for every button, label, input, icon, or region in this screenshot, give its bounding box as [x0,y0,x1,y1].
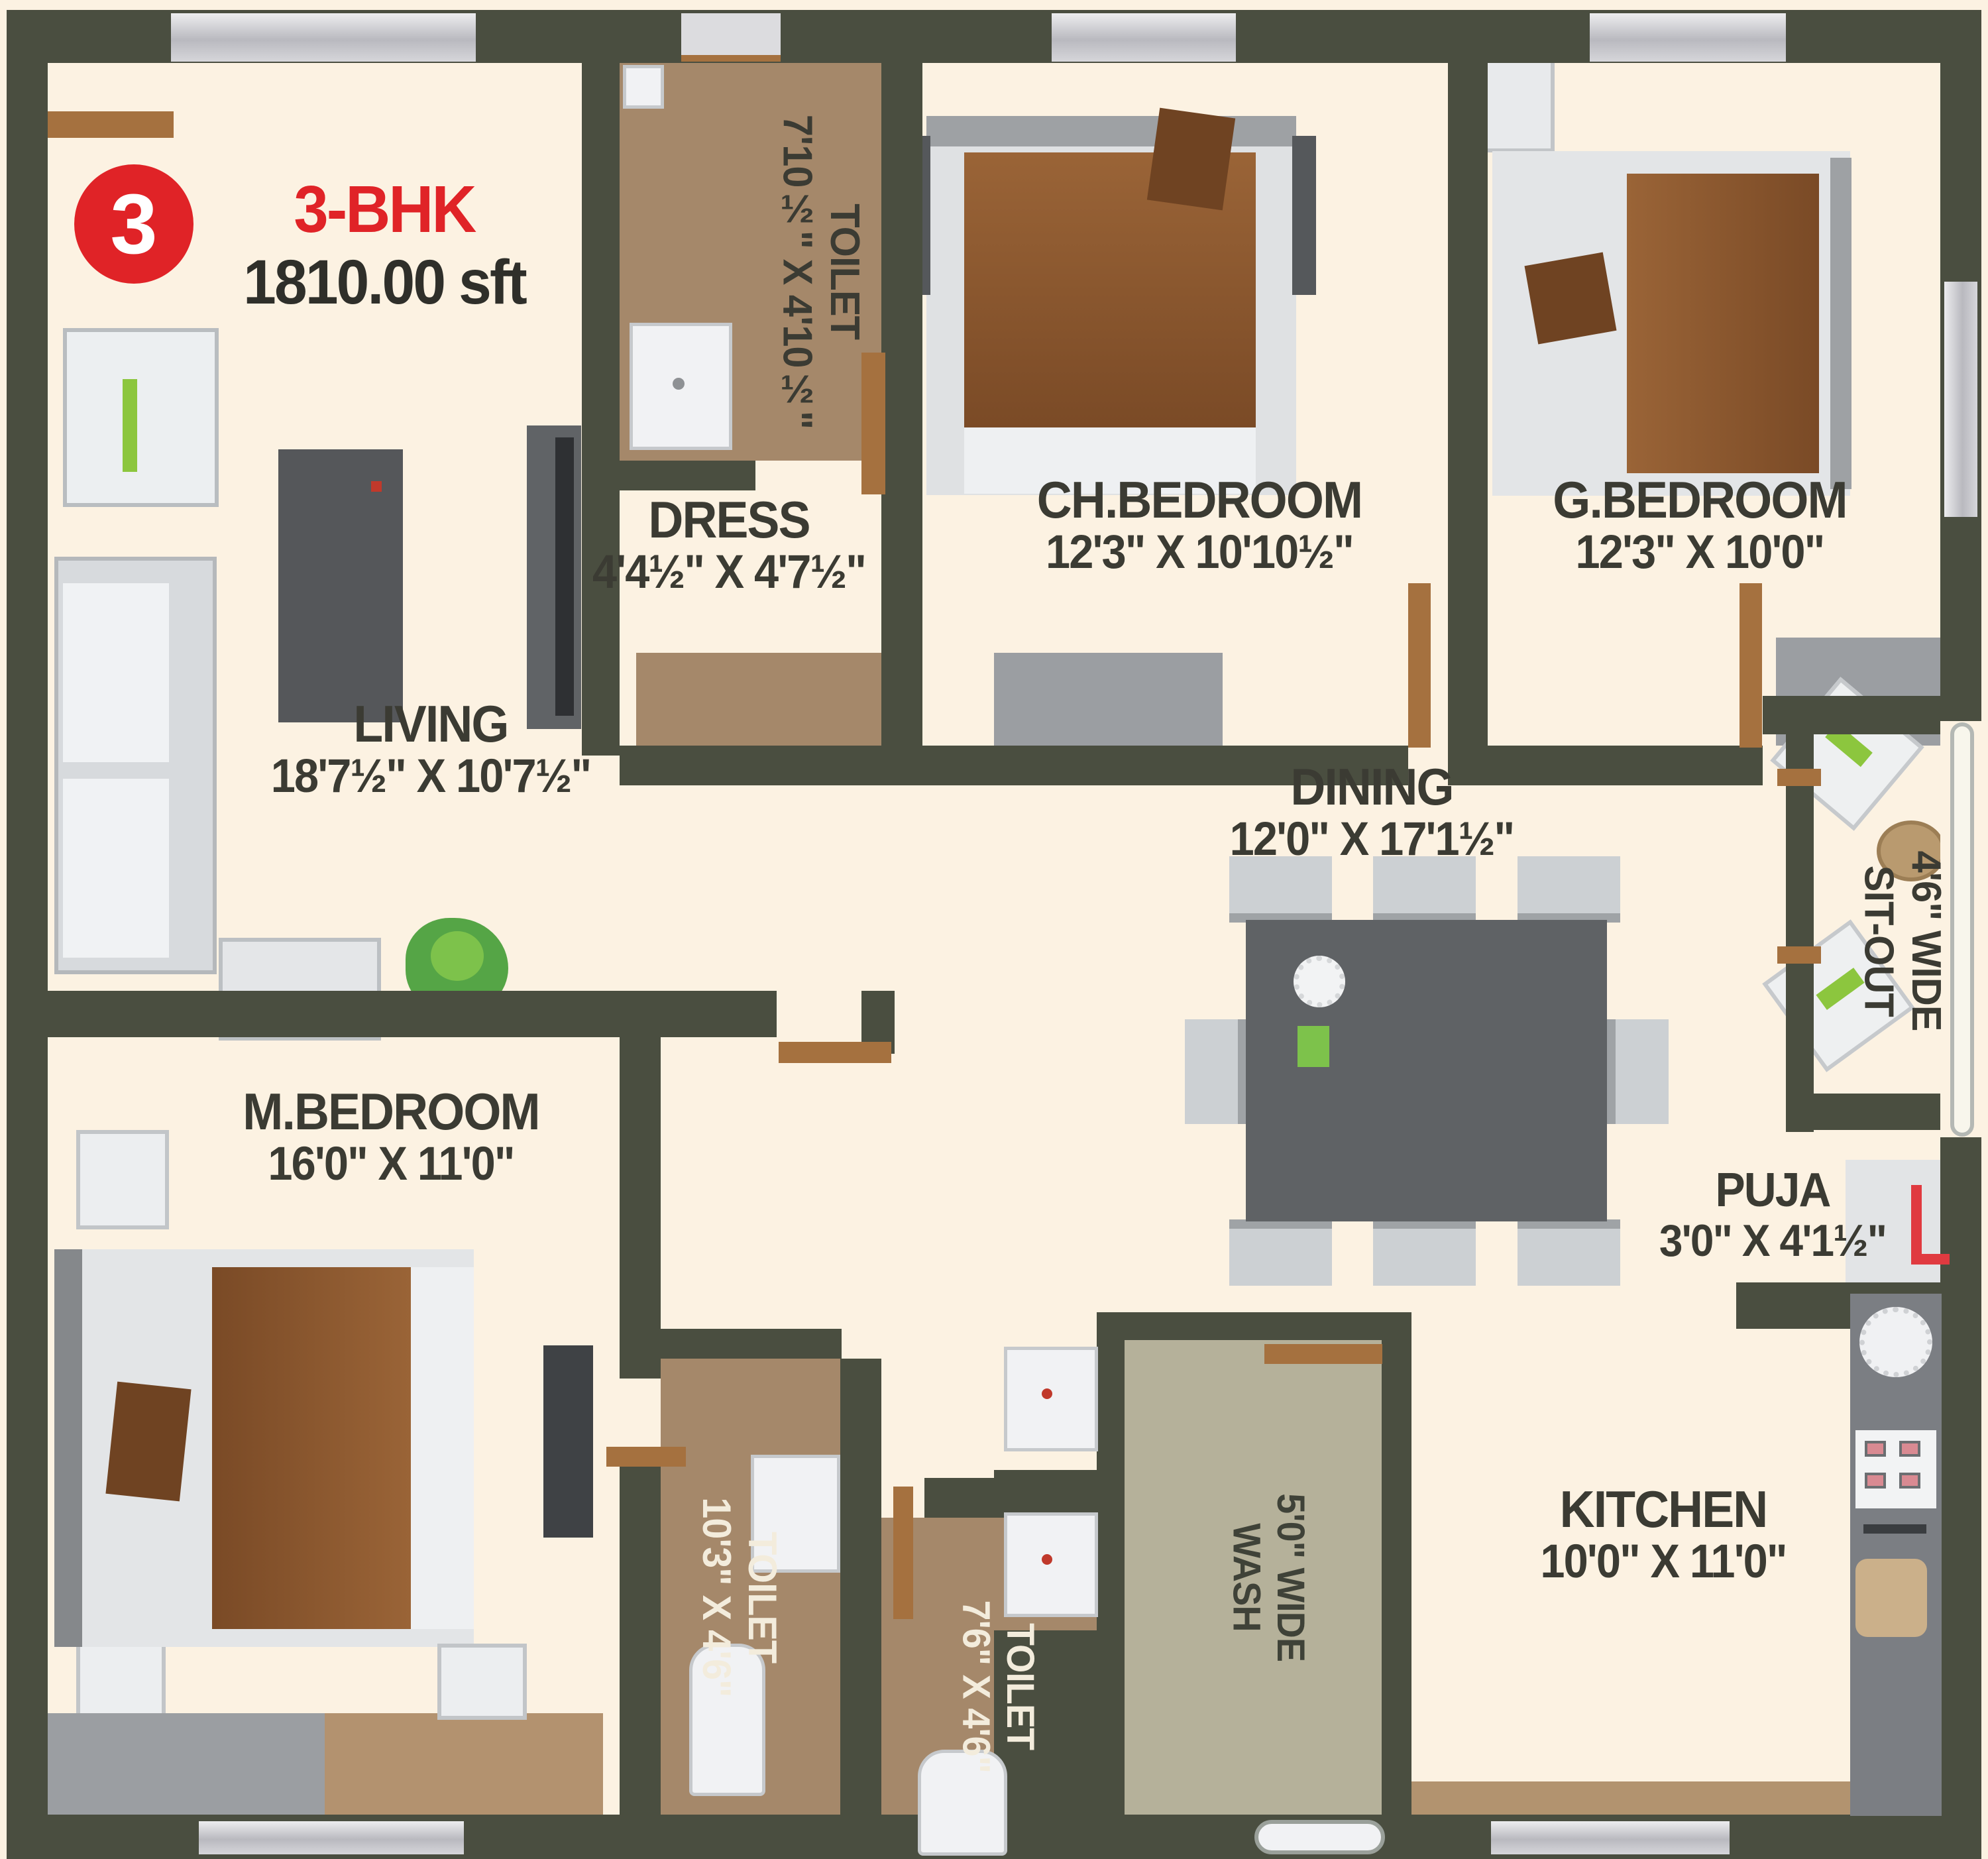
kitchen-name: KITCHEN [1445,1481,1881,1537]
ch-bed-headboard [926,116,1296,146]
wall [1097,1312,1125,1859]
toilet-top-name: TOILET [821,87,868,457]
wash-dims: 5'0" WIDE [1268,1412,1312,1742]
g-bed-blanket [1627,174,1819,473]
puja-dims: 3'0" X 4'1½" [1626,1217,1919,1265]
g-bed-pillow [1524,252,1616,344]
sitout-window-bar [1777,946,1821,964]
unit-area: 1810.00 sft [203,249,565,317]
kitchen-sink [1859,1307,1932,1377]
sitout-window-bar [1777,769,1821,786]
wall [1097,1312,1408,1340]
living-name: LIVING [200,696,661,752]
kitchen-label: KITCHEN 10'0" X 11'0" [1445,1481,1881,1588]
m-bed-sheet [411,1267,474,1629]
toilet-common-name: TOILET [997,1537,1042,1836]
dining-name: DINING [1141,759,1602,815]
kitchen-floor-strip [1411,1781,1859,1815]
dress-floor-strip [636,653,881,746]
sitout-label: 4'6" WIDE SIT-OUT [1830,763,1950,1119]
stove-burner [1899,1473,1920,1489]
kitchen-dims: 10'0" X 11'0" [1445,1537,1881,1588]
stove-burner [1865,1441,1886,1457]
wall [840,1359,881,1859]
stove-burner [1899,1441,1920,1457]
toilet-common-door [893,1487,913,1619]
plant-highlight [431,931,484,981]
unit-area-text: 1810.00 sft [203,249,565,317]
ch-bedroom-dims: 12'3" X 10'10½" [963,528,1436,579]
sitout-railing [1950,722,1974,1137]
wash-name: WASH [1224,1412,1268,1742]
unit-number-badge: 3 [74,164,193,284]
cabinet-knob [371,481,382,492]
dining-chair [1229,856,1332,923]
ch-bedroom-label: CH.BEDROOM 12'3" X 10'10½" [963,472,1436,579]
m-side-table [76,1130,169,1229]
unit-type-text: 3-BHK [229,174,540,245]
dress-name: DRESS [555,492,903,547]
window [171,13,476,62]
dining-chair [1518,856,1620,923]
dining-chair [1518,1219,1620,1286]
window [1491,1821,1730,1854]
wall-left [7,10,48,1859]
unit-type: 3-BHK [229,174,540,245]
dining-label: DINING 12'0" X 17'1½" [1141,759,1602,866]
table-mat [1298,1026,1329,1067]
washbasin [1004,1347,1098,1451]
m-bedroom-label: M.BEDROOM 16'0" X 11'0" [160,1084,622,1190]
toilet-top-basin-dot [673,378,685,390]
ch-bedroom-name: CH.BEDROOM [963,472,1436,528]
window [199,1821,464,1854]
dressing-stool [437,1644,527,1720]
ch-wardrobe [994,653,1223,746]
sofa-cushion [63,583,169,762]
unit-number: 3 [110,176,157,273]
dining-chair [1373,1219,1476,1286]
ch-side-table [1292,136,1316,295]
washbasin-tap [1042,1554,1052,1565]
window [1590,13,1786,62]
g-bedroom-dims: 12'3" X 10'0" [1472,528,1927,579]
dining-chair [1185,1019,1247,1124]
sitout-dims: 4'6" WIDE [1903,763,1950,1119]
floor-plan: 3 3-BHK 1810.00 sft LIVING 18'7½" X 10'7… [0,0,1988,1859]
m-bedroom-door [779,1042,891,1063]
wall [881,63,922,785]
wall [48,991,777,1037]
wall [1382,1312,1411,1859]
dining-chair [1373,856,1476,923]
dressing-table [325,1713,603,1816]
toilet-master-label: TOILET 10'3" X 4'6" [653,1419,785,1775]
washbasin-tap [1042,1388,1052,1399]
m-tv [543,1345,593,1538]
armchair [63,328,219,507]
toilet-top-dims: 7'10½" X 4'10½" [773,87,820,457]
g-bedroom-name: G.BEDROOM [1472,472,1927,528]
armchair-accent [123,379,137,472]
dress-dims: 4'4½" X 4'7½" [555,547,903,598]
wall [620,461,755,490]
toilet-common-dims: 7'6" X 4'6" [954,1537,998,1836]
sofa-cushion [63,779,169,958]
wash-sliding-door [1254,1820,1385,1854]
puja-name: PUJA [1626,1165,1919,1217]
living-dims: 18'7½" X 10'7½" [200,752,661,803]
g-cabinet [1476,58,1555,152]
m-bedroom-dims: 16'0" X 11'0" [160,1139,622,1190]
wall [582,63,620,756]
wall [994,1470,1097,1500]
g-bedroom-label: G.BEDROOM 12'3" X 10'0" [1472,472,1927,579]
toilet-master-dims: 10'3" X 4'6" [694,1419,740,1775]
m-wardrobe [46,1713,325,1815]
living-label: LIVING 18'7½" X 10'7½" [200,696,661,803]
wash-door-track [1264,1344,1382,1364]
window [1052,13,1236,62]
sitout-name: SIT-OUT [1855,763,1902,1119]
ch-bedroom-door [1408,583,1431,748]
table-flower [1294,956,1345,1007]
dining-chair [1606,1019,1669,1124]
ch-bed-pillow [1147,108,1235,211]
m-bed-blanket [212,1267,411,1629]
toilet-master-name: TOILET [740,1419,785,1775]
g-bedroom-door [1739,583,1762,748]
wall [1448,56,1488,785]
wall [1786,696,1814,1132]
toilet-top-shelf [623,65,664,109]
wall [620,1037,661,1379]
m-bed-headboard [54,1249,82,1647]
dress-label: DRESS 4'4½" X 4'7½" [555,492,903,598]
dining-dims: 12'0" X 17'1½" [1141,815,1602,866]
wash-label: 5'0" WIDE WASH [1193,1412,1312,1742]
main-door [681,13,781,62]
window [1944,282,1977,517]
puja-label: PUJA 3'0" X 4'1½" [1626,1165,1919,1265]
toilet-top-label: TOILET 7'10½" X 4'10½" [716,87,868,457]
dining-chair [1229,1219,1332,1286]
m-bed-pillow [105,1382,191,1502]
g-bed-headboard [1830,158,1851,489]
wall [661,1329,842,1359]
toilet-common-label: TOILET 7'6" X 4'6" [916,1537,1042,1836]
living-cabinet [278,449,403,722]
m-bedroom-name: M.BEDROOM [160,1084,622,1139]
